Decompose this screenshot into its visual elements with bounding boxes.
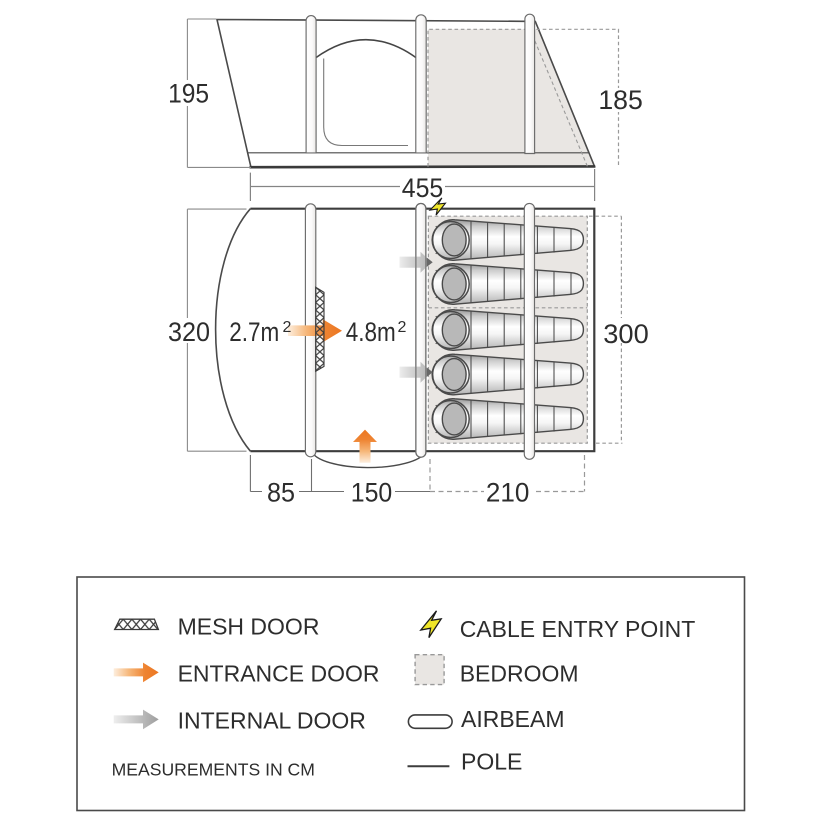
svg-text:ENTRANCE DOOR: ENTRANCE DOOR — [178, 660, 380, 686]
svg-text:210: 210 — [486, 477, 530, 507]
svg-text:BEDROOM: BEDROOM — [460, 661, 579, 687]
svg-text:2: 2 — [283, 319, 292, 336]
svg-text:INTERNAL DOOR: INTERNAL DOOR — [178, 707, 366, 733]
svg-text:2: 2 — [398, 319, 407, 336]
svg-text:150: 150 — [351, 477, 393, 507]
svg-text:2.7m: 2.7m — [229, 317, 279, 347]
svg-text:MESH DOOR: MESH DOOR — [178, 613, 320, 639]
svg-text:300: 300 — [603, 319, 649, 349]
svg-text:320: 320 — [168, 317, 210, 347]
svg-text:CABLE ENTRY POINT: CABLE ENTRY POINT — [460, 616, 696, 642]
svg-text:MEASUREMENTS IN CM: MEASUREMENTS IN CM — [112, 760, 315, 780]
svg-text:455: 455 — [402, 173, 444, 203]
svg-text:195: 195 — [168, 79, 209, 109]
svg-text:POLE: POLE — [461, 748, 522, 774]
svg-text:185: 185 — [598, 85, 643, 115]
svg-text:85: 85 — [267, 477, 295, 507]
svg-text:4.8m: 4.8m — [346, 317, 396, 347]
svg-text:AIRBEAM: AIRBEAM — [461, 706, 565, 732]
